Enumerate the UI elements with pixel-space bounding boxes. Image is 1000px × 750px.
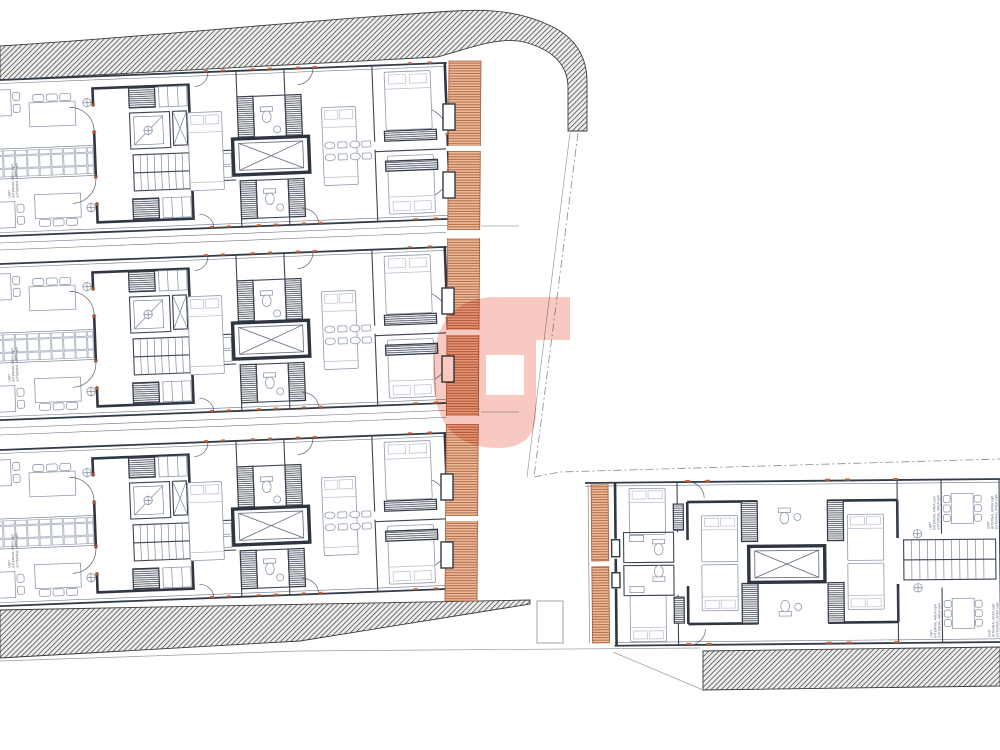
toilet — [778, 508, 790, 524]
unit-area-label: UNIT INTERNAL AREA sqm EXTERNAL AREA sqm — [987, 602, 999, 637]
balcony-threshold — [443, 104, 455, 130]
terrace-deck-strip-right — [591, 485, 610, 643]
unit-block-2 — [0, 246, 454, 421]
svg-text:EXTERNAL AREA sqm: EXTERNAL AREA sqm — [937, 603, 941, 638]
site-boundary-band-bottom-right — [703, 647, 1000, 690]
wardrobe — [673, 504, 683, 530]
balcony-threshold — [441, 474, 453, 500]
balcony-threshold — [612, 540, 620, 557]
dining-table — [943, 493, 981, 523]
wardrobe — [827, 501, 843, 541]
stairwell-right — [903, 529, 996, 592]
bathrooms-left — [623, 532, 674, 595]
svg-text:EXTERNAL AREA sqm: EXTERNAL AREA sqm — [936, 495, 940, 530]
toilet — [779, 600, 791, 616]
plot-recess-rect — [537, 601, 563, 643]
unit-block-3 — [0, 432, 454, 607]
bed — [848, 563, 884, 609]
wardrobe — [741, 501, 757, 541]
bed — [702, 565, 738, 611]
bed — [847, 514, 883, 560]
svg-text:EXTERNAL AREA sqm: EXTERNAL AREA sqm — [994, 494, 998, 529]
unit-area-label: UNIT INTERNAL AREA sqm EXTERNAL AREA sqm — [986, 494, 998, 529]
plot-boundary-line — [534, 133, 1000, 477]
watermark-logo-g — [433, 297, 570, 448]
svg-text:EXTERNAL AREA sqm: EXTERNAL AREA sqm — [995, 602, 999, 637]
column-cross — [914, 584, 922, 592]
wardrobe — [674, 597, 684, 623]
unit-block-right: UNIT INTERNAL AREA sqm EXTERNAL AREA sqm… — [585, 478, 1000, 646]
unit-area-label: UNIT INTERNAL AREA sqm EXTERNAL AREA sqm — [928, 495, 940, 530]
balcony-threshold — [443, 172, 455, 198]
unit-block-1 — [0, 62, 454, 237]
bed — [629, 488, 665, 534]
left-wall — [615, 483, 617, 646]
unit-area-label: UNIT INTERNAL AREA sqm EXTERNAL AREA sqm — [929, 603, 941, 638]
site-boundary-band-bottom-left — [0, 600, 530, 658]
wardrobe — [828, 583, 844, 623]
floor-plan-canvas: UNIT INTERNAL AREA sqm EXTERNAL AREA sqm — [0, 0, 1000, 750]
balcony-threshold — [442, 288, 454, 314]
wardrobe — [742, 583, 758, 623]
bed — [630, 595, 666, 641]
column-cross — [913, 530, 921, 538]
balcony-threshold — [441, 542, 453, 568]
dining-table — [944, 598, 982, 628]
balcony-threshold — [612, 573, 620, 588]
floor-plan-drawing: UNIT INTERNAL AREA sqm EXTERNAL AREA sqm — [0, 0, 1000, 750]
elevator — [749, 546, 825, 583]
bed — [701, 516, 737, 562]
